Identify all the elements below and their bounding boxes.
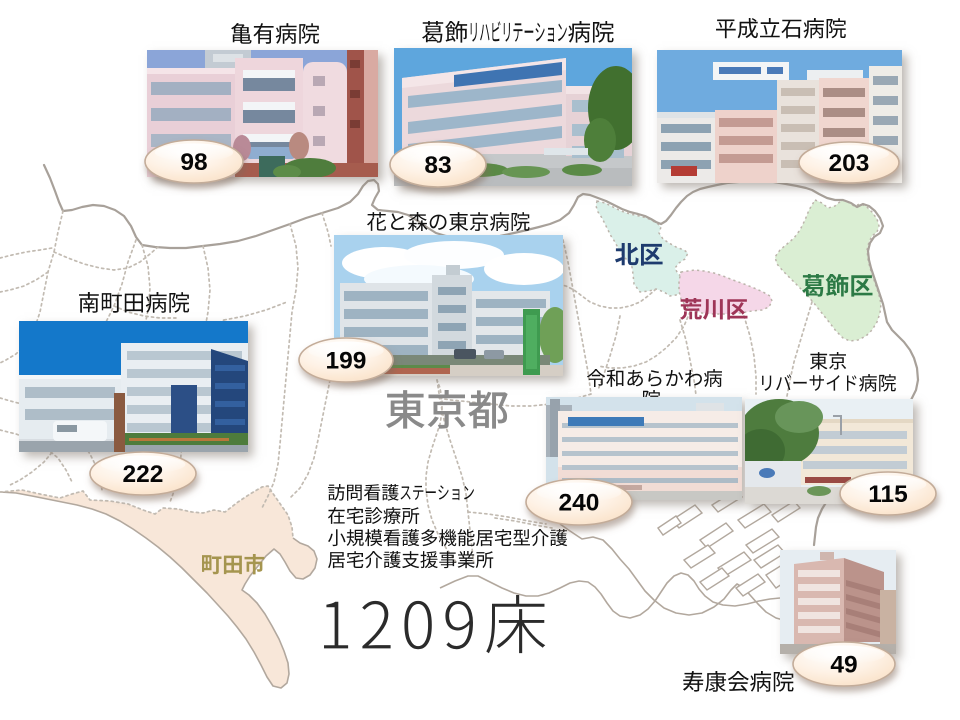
svg-text:83: 83 — [424, 152, 451, 179]
svg-text:199: 199 — [326, 348, 367, 375]
svg-text:203: 203 — [829, 150, 870, 177]
svg-text:49: 49 — [830, 652, 857, 679]
svg-text:222: 222 — [123, 461, 164, 488]
svg-text:115: 115 — [868, 481, 908, 508]
svg-text:240: 240 — [559, 490, 600, 517]
svg-text:98: 98 — [180, 149, 207, 176]
